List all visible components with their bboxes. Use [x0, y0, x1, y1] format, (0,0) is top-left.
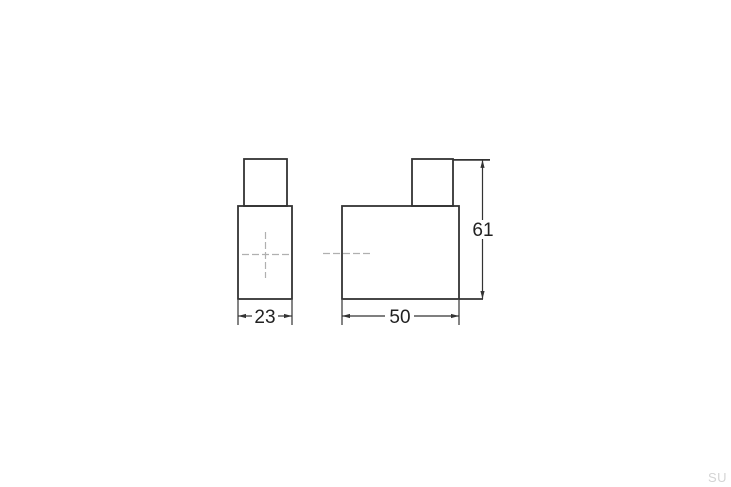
front-view-neck	[244, 159, 287, 206]
dimension-label-side-height: 61	[472, 220, 493, 241]
side-view: 50 61	[323, 159, 494, 328]
front-view-centerline-cross	[242, 232, 290, 278]
arrow-left-icon	[238, 314, 246, 318]
technical-drawing: 23 50	[0, 0, 731, 487]
watermark: SU	[708, 470, 727, 485]
dimension-side-height: 61	[472, 160, 493, 299]
side-view-neck	[412, 159, 453, 206]
side-view-body	[342, 206, 459, 299]
dimension-label-side-depth: 50	[389, 307, 410, 328]
arrow-left-icon	[342, 314, 350, 318]
dimension-label-front-width: 23	[254, 307, 275, 328]
side-view-outline	[342, 159, 490, 299]
dimension-front-width: 23	[238, 300, 292, 328]
arrow-right-icon	[284, 314, 292, 318]
arrow-right-icon	[451, 314, 459, 318]
dimension-side-depth: 50	[342, 300, 459, 328]
front-view: 23	[238, 159, 292, 328]
arrow-bottom-icon	[480, 291, 484, 299]
arrow-top-icon	[480, 160, 484, 168]
